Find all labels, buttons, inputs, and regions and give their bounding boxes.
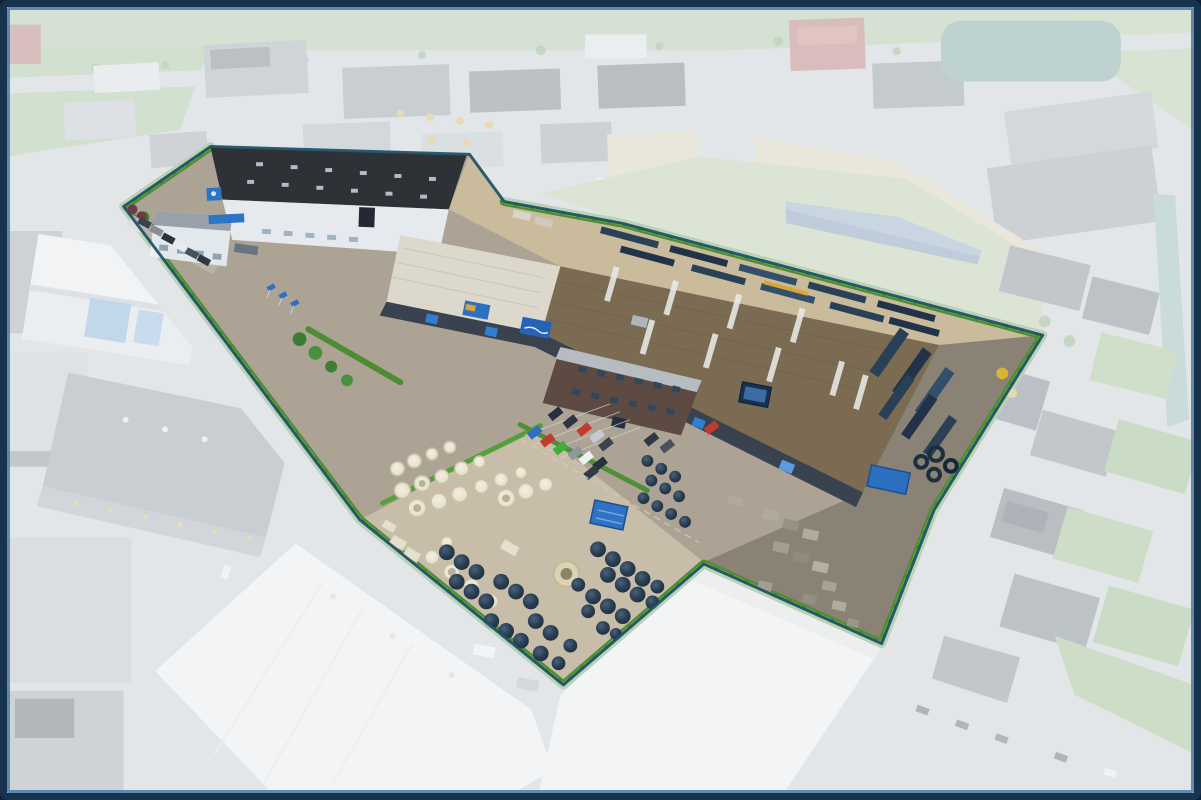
photo-frame <box>0 0 1201 800</box>
aerial-photo <box>7 7 1194 793</box>
loading-door <box>359 207 375 227</box>
concrete-ring <box>390 462 404 476</box>
storage-tank <box>439 544 455 560</box>
blue-roof-sign <box>208 213 244 224</box>
north-warehouse-roof <box>211 147 467 209</box>
